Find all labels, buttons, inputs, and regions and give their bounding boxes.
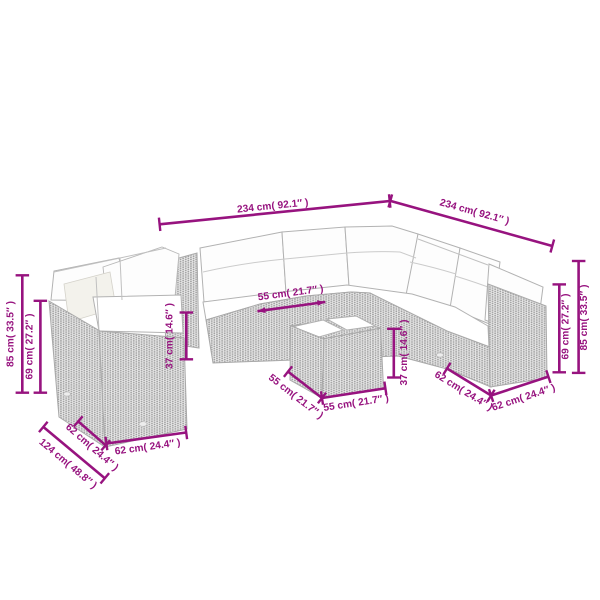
svg-text:37 cm( 14.6″ ): 37 cm( 14.6″ ) [165, 303, 176, 369]
svg-text:85 cm( 33.5″ ): 85 cm( 33.5″ ) [5, 301, 16, 367]
svg-text:69 cm( 27.2″ ): 69 cm( 27.2″ ) [561, 293, 572, 359]
svg-text:37 cm( 14.6″ ): 37 cm( 14.6″ ) [399, 319, 410, 385]
svg-text:69 cm( 27.2″ ): 69 cm( 27.2″ ) [24, 313, 35, 379]
svg-text:85 cm( 33.5″ ): 85 cm( 33.5″ ) [579, 284, 590, 350]
